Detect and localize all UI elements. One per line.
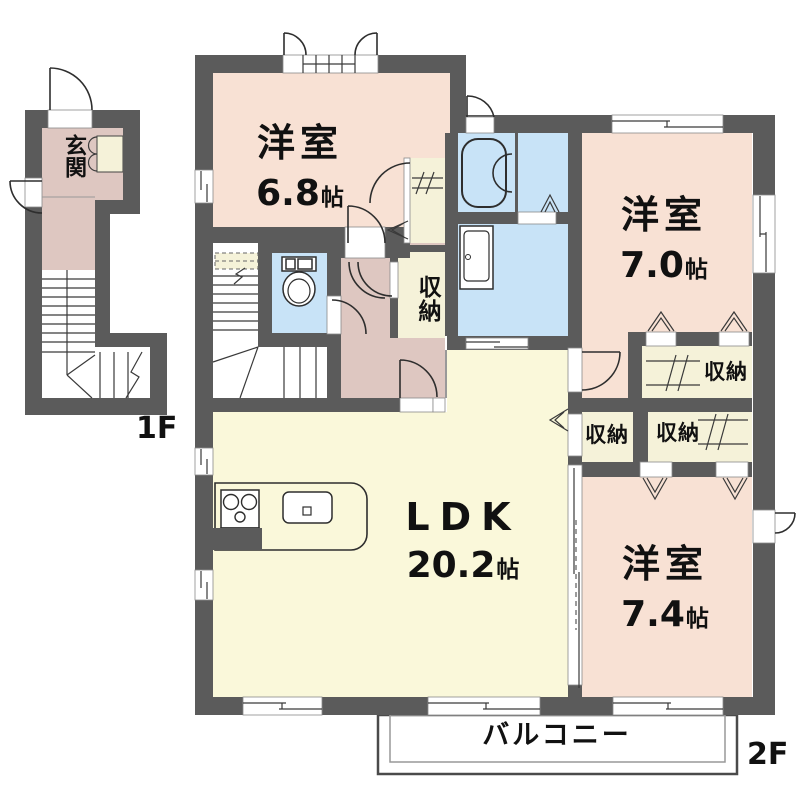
sink-icon: [283, 492, 332, 523]
bathtub-icon: [462, 139, 512, 207]
floor2-tag: 2F: [747, 740, 788, 770]
storage-c-label: 収納: [650, 423, 706, 444]
vanity-sink-icon: [460, 226, 493, 289]
bedroom74-outswing-door-arc: [775, 513, 795, 533]
bedroom70-name: 洋室: [594, 196, 734, 234]
ldk-name: LDK: [393, 498, 533, 536]
bedroom68-name: 洋室: [230, 124, 370, 162]
storage-a-label: 収納: [698, 362, 754, 383]
bedroom70-size: 7.0帖: [594, 248, 734, 284]
entrance-label: 玄関: [56, 134, 84, 196]
bedroom68-size-value: 6.8: [256, 176, 320, 212]
ldk-size-unit: 帖: [496, 559, 519, 582]
bedroom74-size: 7.4帖: [595, 597, 735, 633]
entrance-door-arc: [50, 68, 92, 110]
bath-casement-window: [467, 96, 494, 117]
bedroom74-size-unit: 帖: [686, 608, 709, 631]
floor1-tag: 1F: [136, 414, 177, 444]
toilet-icon: [282, 257, 316, 306]
kitchen-counter: [213, 483, 367, 550]
bedroom68-size-unit: 帖: [321, 187, 344, 210]
bedroom74-name: 洋室: [595, 545, 735, 583]
bedroom70-size-unit: 帖: [685, 259, 708, 282]
bedroom70-size-value: 7.0: [620, 248, 684, 284]
bedroom74-size-value: 7.4: [621, 597, 685, 633]
first-floor: [10, 68, 167, 415]
floorplan-drawing: [0, 0, 800, 800]
balcony-label: バルコニー: [457, 722, 657, 749]
storage-b-label: 収納: [579, 425, 635, 446]
ldk-size-value: 20.2: [407, 548, 496, 584]
storage-hall-label: 収納: [408, 266, 438, 332]
bedroom68-size: 6.8帖: [230, 176, 370, 212]
ldk-size: 20.2帖: [393, 548, 533, 584]
floor-plan: 玄関 1F 洋室 6.8帖 洋室 7.0帖 洋室 7.4帖 LDK 20.2帖 …: [0, 0, 800, 800]
